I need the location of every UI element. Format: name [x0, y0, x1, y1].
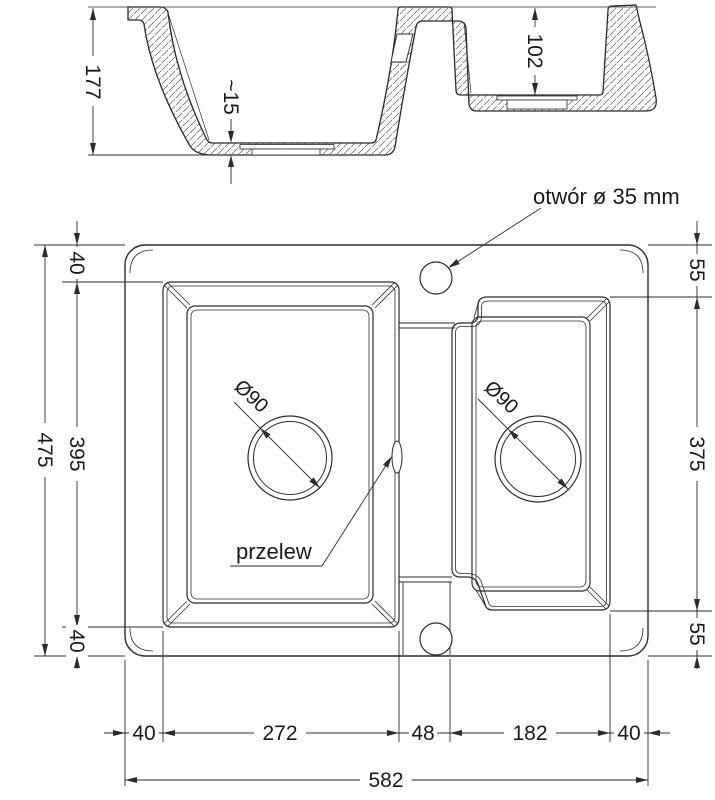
- small-bowl-corner-bevels: [474, 299, 609, 609]
- sink-outer-edge: [125, 245, 648, 656]
- overflow-slot: [392, 441, 402, 473]
- dim-total-width: 582: [368, 769, 403, 792]
- dim-small-bowl-height: 375: [685, 436, 708, 471]
- dim-total-height: 475: [33, 432, 56, 467]
- dim-base-thickness: ~15: [219, 79, 242, 115]
- dim-main-bowl-width: 272: [262, 722, 297, 745]
- main-drain-recess: [240, 145, 334, 150]
- main-drain-diameter-label: Ø90: [230, 376, 273, 418]
- small-drain-recess: [497, 96, 577, 100]
- plan-view: [125, 208, 648, 656]
- arrowhead: [90, 8, 96, 20]
- arrowhead: [532, 83, 538, 95]
- small-drain: [478, 399, 581, 502]
- main-bowl-corner-bevels: [164, 282, 398, 627]
- dim-small-bowl-depth: 102: [523, 33, 546, 68]
- tap-hole-bottom: [420, 623, 452, 655]
- drawing-canvas: 177 ~15 102: [0, 0, 715, 800]
- tap-hole-label: otwór ø 35 mm: [533, 184, 680, 209]
- dim-main-bowl-height: 395: [65, 436, 88, 471]
- small-drain-recess-inner: [507, 100, 567, 109]
- small-drain-diameter-label: Ø90: [480, 377, 523, 419]
- dim-right-bottom-margin: 55: [685, 622, 708, 645]
- arrowhead: [90, 143, 96, 155]
- dim-bottom-margin: 40: [65, 629, 88, 652]
- sink-technical-drawing: 177 ~15 102: [0, 0, 715, 800]
- dim-top-margin: 40: [65, 251, 88, 274]
- main-drain: [234, 402, 332, 500]
- dim-right-top-margin: 55: [685, 258, 708, 281]
- corner-arc-tl: [130, 250, 153, 273]
- tap-hole-top: [420, 262, 452, 294]
- bowl-divider: [399, 323, 455, 655]
- corner-arc-bl: [130, 628, 153, 651]
- dim-bottom-right-margin: 40: [617, 722, 640, 745]
- arrowhead: [448, 259, 460, 268]
- section-view: [88, 5, 656, 155]
- section-material-profile: [128, 5, 656, 155]
- dim-divider-width: 48: [411, 722, 434, 745]
- arrowhead: [228, 131, 234, 143]
- dim-bottom-left-margin: 40: [132, 722, 155, 745]
- overflow-label: przelew: [236, 539, 312, 564]
- arrowhead: [532, 8, 538, 20]
- arrowhead: [383, 456, 392, 468]
- corner-arc-tr: [620, 250, 643, 273]
- dim-small-bowl-width: 182: [512, 722, 547, 745]
- main-drain-recess-inner: [252, 149, 320, 155]
- tap-hole-leader: [448, 208, 541, 268]
- arrowhead: [228, 155, 234, 167]
- main-bowl-outline: [163, 282, 399, 627]
- corner-arc-br: [620, 628, 643, 651]
- small-bowl-outline: [452, 297, 610, 610]
- dim-overall-depth: 177: [81, 64, 104, 99]
